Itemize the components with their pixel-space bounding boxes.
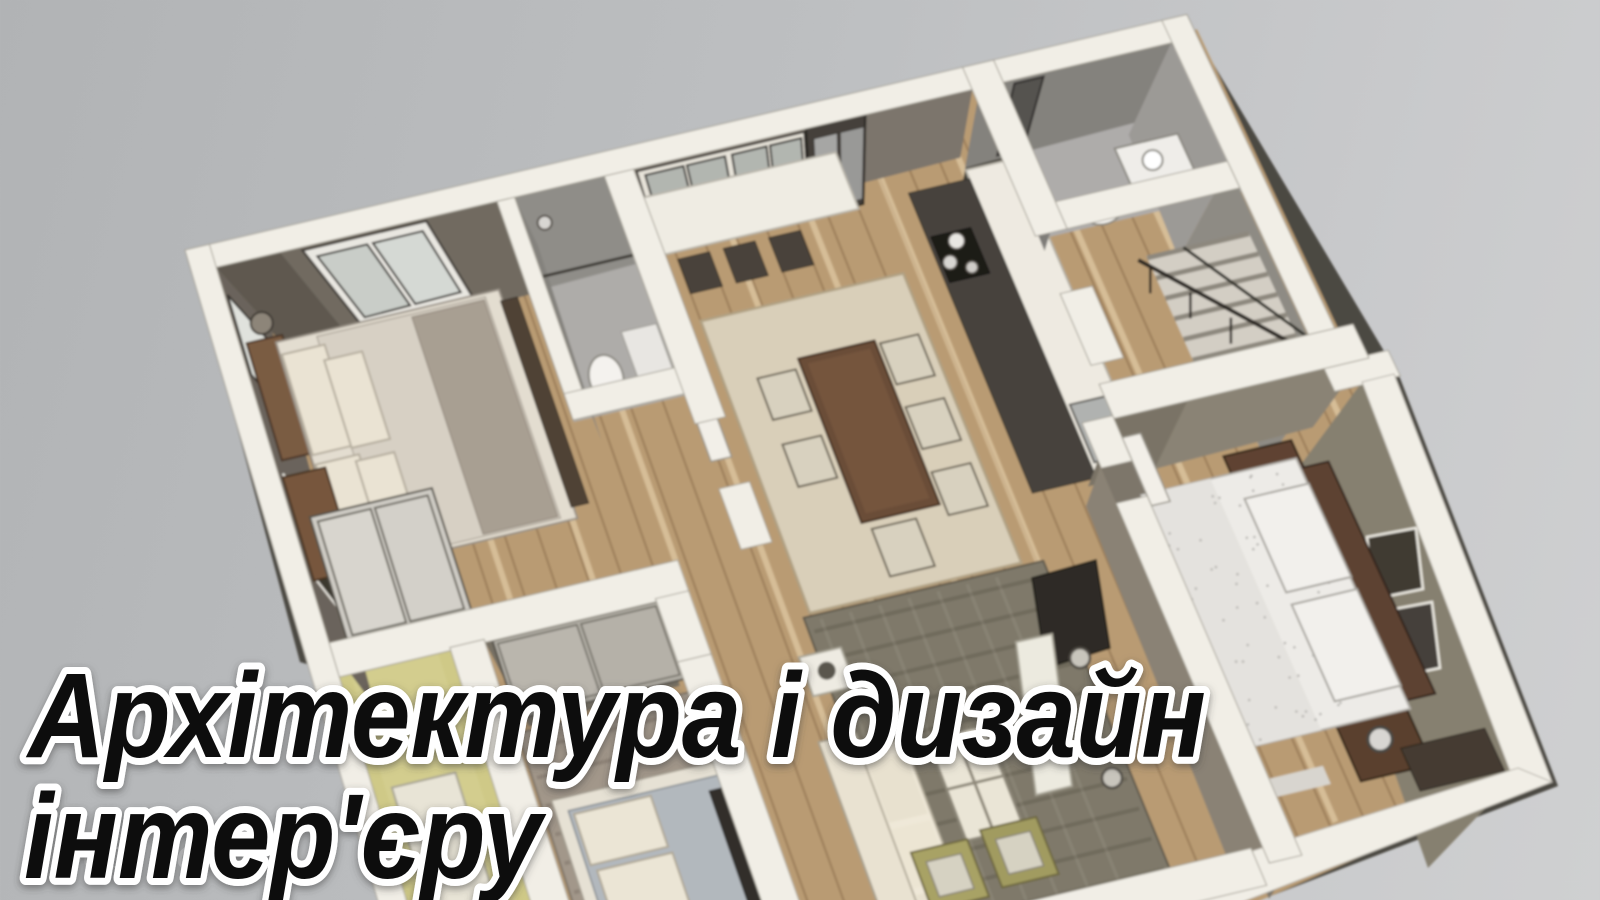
svg-text:інтер'єру: інтер'єру (24, 768, 547, 900)
svg-text:Архітектура і дизайн: Архітектура і дизайн (25, 647, 1206, 783)
